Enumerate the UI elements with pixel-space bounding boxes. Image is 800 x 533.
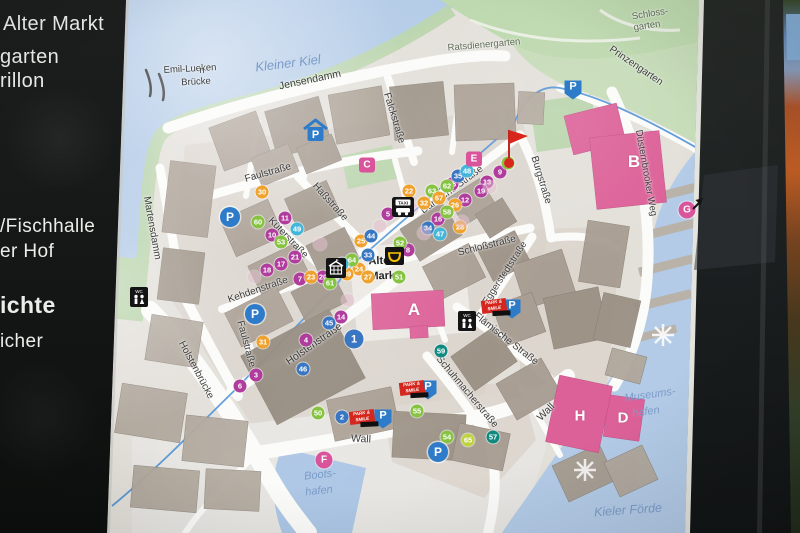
map-graphic [0, 0, 800, 533]
photo-of-city-map-sign: Alter Marktgartenrillon/Fischhalleer Hof… [0, 0, 800, 533]
